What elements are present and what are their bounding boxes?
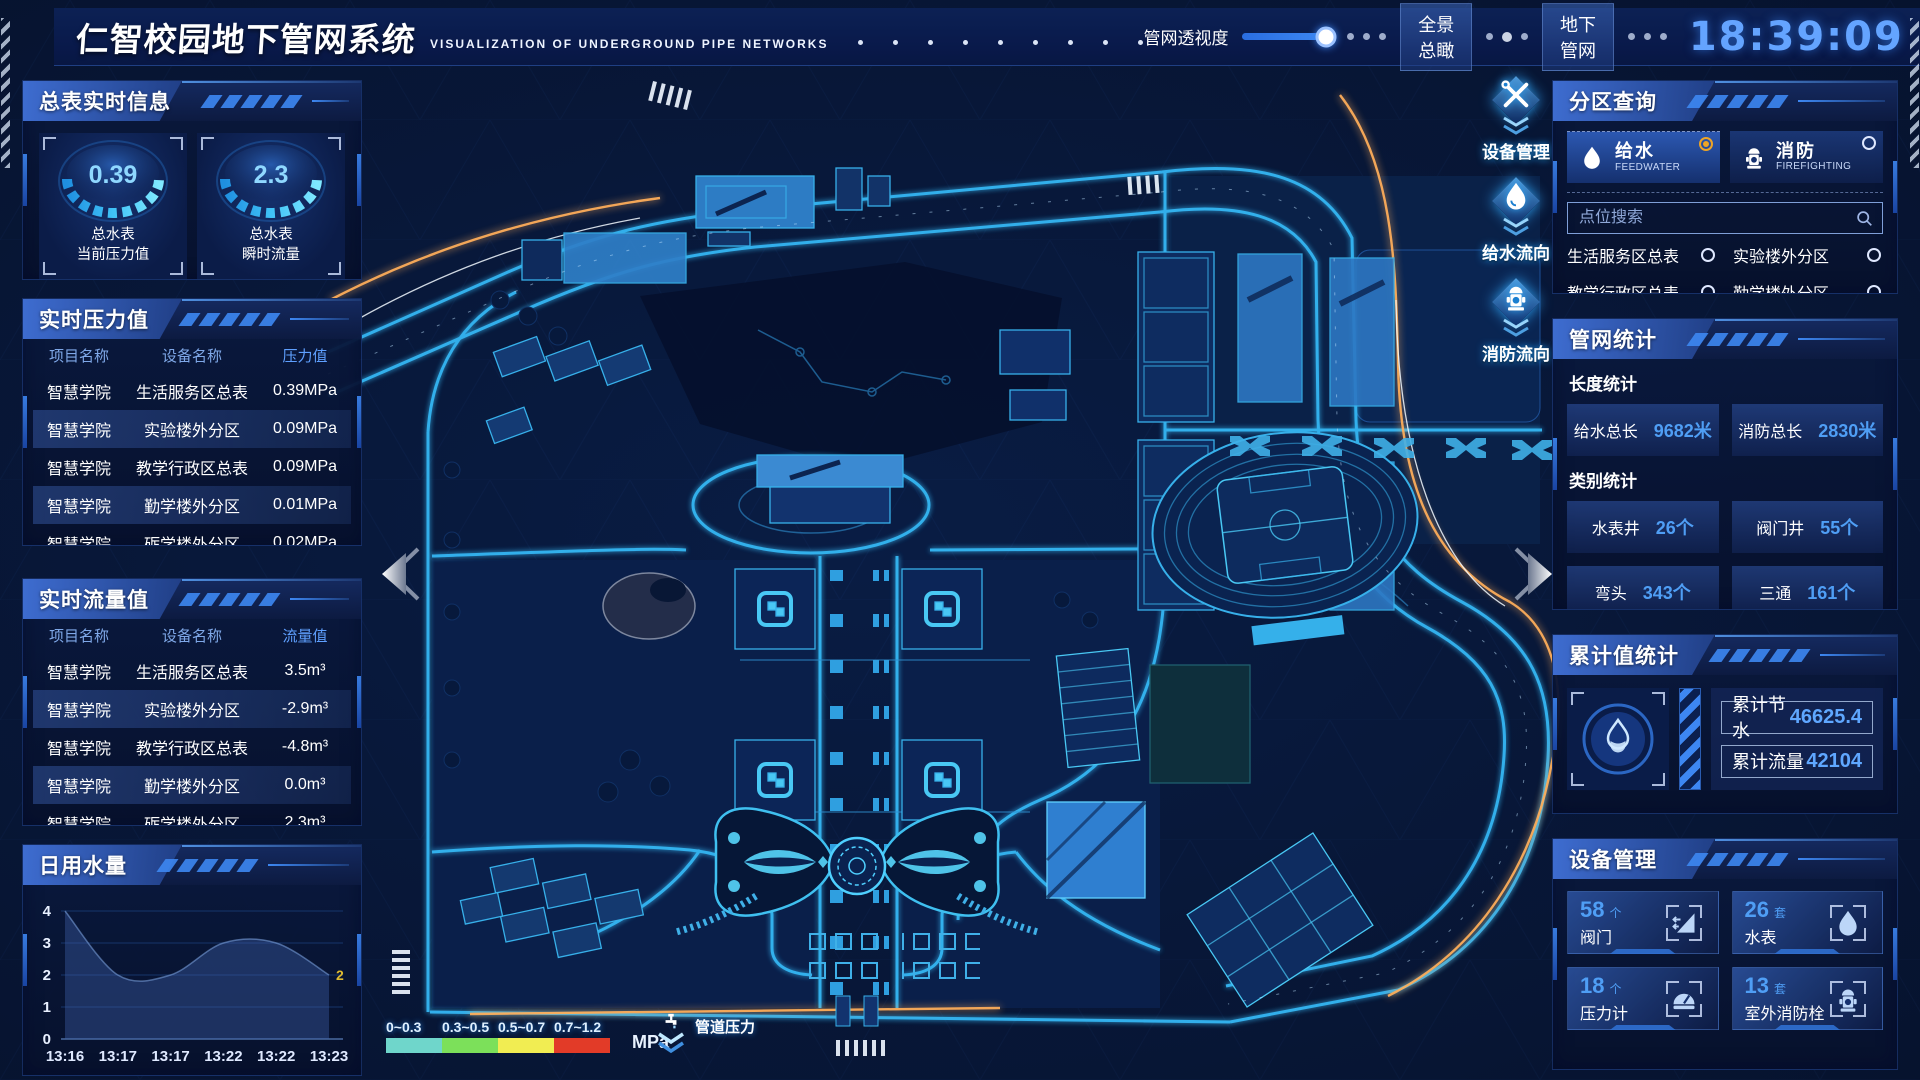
svg-text:1: 1 bbox=[43, 999, 51, 1016]
realtime-flow-section: 实时流量值 项目名称 设备名称 流量值 智慧学院生活服务区总表3.5m³ 智慧学… bbox=[22, 578, 362, 826]
zone-query-section: 分区查询 给水 FEEDWATER bbox=[1552, 80, 1898, 294]
header-line-decoration bbox=[312, 100, 349, 102]
cumulative-stats-section: 累计值统计 累计节水 46625.4 bbox=[1552, 634, 1898, 814]
search-input[interactable] bbox=[1577, 208, 1856, 228]
fire-hydrant-icon bbox=[1742, 144, 1766, 170]
table-row[interactable]: 智慧学院生活服务区总表3.5m³ bbox=[33, 652, 351, 690]
radio-unselected-icon[interactable] bbox=[1867, 248, 1881, 262]
dashed-divider bbox=[1567, 192, 1883, 193]
pressure-table-header: 项目名称 设备名称 压力值 bbox=[23, 339, 361, 372]
realtime-pressure-section: 实时压力值 项目名称 设备名称 压力值 智慧学院生活服务区总表0.39MPa 智… bbox=[22, 298, 362, 546]
header-slashes-decoration bbox=[1691, 333, 1784, 346]
table-row[interactable]: 智慧学院实验楼外分区0.09MPa bbox=[33, 410, 351, 448]
header-dots-decoration bbox=[858, 40, 1143, 45]
pipe-pressure-toggle[interactable]: 管道压力 bbox=[655, 1012, 755, 1054]
zone-list: 生活服务区总表 实验楼外分区 教学行政区总表 勤学楼外分区 砺学楼外分区 宿舍区… bbox=[1567, 243, 1889, 294]
header-slashes-decoration bbox=[205, 95, 298, 108]
water-drop-icon bbox=[1579, 145, 1605, 171]
pipe-opacity-label: 管网透视度 bbox=[1143, 24, 1228, 49]
list-item[interactable]: 勤学楼外分区 bbox=[1733, 280, 1889, 294]
dots-decoration bbox=[1347, 33, 1386, 40]
list-item[interactable]: 生活服务区总表 bbox=[1567, 243, 1723, 267]
table-row[interactable]: 智慧学院生活服务区总表0.39MPa bbox=[33, 372, 351, 410]
table-row[interactable]: 智慧学院教学行政区总表0.09MPa bbox=[33, 448, 351, 486]
flow-table: 智慧学院生活服务区总表3.5m³ 智慧学院实验楼外分区-2.9m³ 智慧学院教学… bbox=[23, 652, 361, 826]
header-line-decoration bbox=[1798, 338, 1885, 340]
map-prev-arrow[interactable] bbox=[372, 545, 422, 603]
legend-segment: 0~0.3 bbox=[386, 1019, 442, 1053]
section-title: 分区查询 bbox=[1569, 86, 1657, 116]
stat-valve-wells: 阀门井 55个 bbox=[1732, 501, 1884, 553]
card-water-meters[interactable]: 26套 水表 bbox=[1732, 891, 1884, 954]
pressure-gauge-widget: 0.39 总水表 当前压力值 bbox=[39, 133, 187, 279]
water-emblem bbox=[1567, 688, 1669, 790]
section-header: 管网统计 bbox=[1553, 319, 1897, 359]
clock: 18:39:09 bbox=[1689, 14, 1904, 60]
table-row[interactable]: 智慧学院勤学楼外分区0.01MPa bbox=[33, 486, 351, 524]
meter-info-section: 总表实时信息 bbox=[22, 80, 362, 280]
header-slashes-decoration bbox=[1691, 95, 1784, 108]
section-title: 实时压力值 bbox=[39, 304, 149, 334]
device-management-section: 设备管理 58个 阀门 26套 bbox=[1552, 838, 1898, 1070]
stat-fire-length: 消防总长 2830米 bbox=[1732, 404, 1884, 456]
table-row[interactable]: 智慧学院砺学楼外分区2.3m³ bbox=[33, 804, 351, 826]
header-slashes-decoration bbox=[1691, 853, 1784, 866]
radio-unselected-icon[interactable] bbox=[1862, 136, 1876, 150]
section-header: 累计值统计 bbox=[1553, 635, 1897, 675]
cumulative-values: 累计节水 46625.4 累计流量 42104 bbox=[1711, 688, 1883, 790]
legend-segment: 0.3~0.5 bbox=[442, 1019, 498, 1053]
section-title: 总表实时信息 bbox=[39, 86, 171, 116]
point-search[interactable] bbox=[1567, 202, 1883, 234]
svg-text:13:16: 13:16 bbox=[46, 1048, 84, 1065]
tool-feedwater-flow[interactable]: 给水流向 bbox=[1482, 173, 1550, 264]
water-drop-icon bbox=[1502, 180, 1530, 212]
header-line-decoration bbox=[1820, 654, 1885, 656]
stat-elbows: 弯头 343个 bbox=[1567, 566, 1719, 610]
header-line-decoration bbox=[290, 598, 349, 600]
table-row[interactable]: 智慧学院实验楼外分区-2.9m³ bbox=[33, 690, 351, 728]
map-tool-stack: 设备管理 给水流向 消防 bbox=[1468, 72, 1564, 375]
tool-fire-flow[interactable]: 消防流向 bbox=[1482, 274, 1550, 365]
pipe-opacity-slider[interactable] bbox=[1242, 33, 1333, 40]
table-row[interactable]: 智慧学院教学行政区总表-4.8m³ bbox=[33, 728, 351, 766]
radio-unselected-icon[interactable] bbox=[1867, 285, 1881, 294]
svg-text:0.39: 0.39 bbox=[89, 161, 138, 189]
svg-text:13:22: 13:22 bbox=[257, 1048, 295, 1065]
svg-text:2: 2 bbox=[336, 967, 344, 983]
radio-selected-icon[interactable] bbox=[1699, 137, 1713, 151]
pipe-opacity-slider-handle[interactable] bbox=[1316, 26, 1337, 47]
page-subtitle: VISUALIZATION OF UNDERGROUND PIPE NETWOR… bbox=[430, 37, 828, 51]
gauge-label: 总水表 当前压力值 bbox=[77, 225, 150, 266]
svg-text:2.3: 2.3 bbox=[254, 161, 289, 189]
pipe-stats-section: 管网统计 长度统计 给水总长 9682米 消防总长 2830米 类别统计 水表井… bbox=[1552, 318, 1898, 610]
header-slashes-decoration bbox=[183, 313, 276, 326]
card-pressure-gauges[interactable]: 18个 压力计 bbox=[1567, 967, 1719, 1030]
header-line-decoration bbox=[290, 318, 349, 320]
cumulative-flow: 累计流量 42104 bbox=[1721, 745, 1873, 778]
gauge-dial-icon: 0.39 bbox=[43, 133, 183, 229]
flow-table-header: 项目名称 设备名称 流量值 bbox=[23, 619, 361, 652]
list-item[interactable]: 实验楼外分区 bbox=[1733, 243, 1889, 267]
list-item[interactable]: 教学行政区总表 bbox=[1567, 280, 1723, 294]
section-title: 设备管理 bbox=[1569, 844, 1657, 874]
water-drop-badge-icon bbox=[1579, 700, 1657, 778]
category-stats-label: 类别统计 bbox=[1569, 467, 1897, 492]
right-edge-stripes bbox=[1910, 18, 1919, 168]
legend-segment: 0.5~0.7 bbox=[498, 1019, 554, 1053]
svg-text:13:17: 13:17 bbox=[151, 1048, 189, 1065]
header-slashes-decoration bbox=[161, 859, 254, 872]
card-outdoor-hydrants[interactable]: 13套 室外消防栓 bbox=[1732, 967, 1884, 1030]
radio-unselected-icon[interactable] bbox=[1701, 248, 1715, 262]
left-panel: 总表实时信息 bbox=[22, 80, 362, 1076]
stat-feedwater-length: 给水总长 9682米 bbox=[1567, 404, 1719, 456]
svg-text:3: 3 bbox=[43, 935, 51, 952]
section-header: 总表实时信息 bbox=[23, 81, 361, 121]
flow-gauge-widget: 2.3 总水表 瞬时流量 bbox=[197, 133, 345, 279]
radio-unselected-icon[interactable] bbox=[1701, 285, 1715, 294]
length-stats-label: 长度统计 bbox=[1569, 370, 1897, 395]
table-row[interactable]: 智慧学院勤学楼外分区0.0m³ bbox=[33, 766, 351, 804]
section-title: 管网统计 bbox=[1569, 324, 1657, 354]
tool-device-management[interactable]: 设备管理 bbox=[1482, 72, 1550, 163]
header-line-decoration bbox=[268, 864, 349, 866]
right-panel: 分区查询 给水 FEEDWATER bbox=[1552, 80, 1898, 1076]
gauge-dial-icon: 2.3 bbox=[201, 133, 341, 229]
pipe-opacity-slider-fill bbox=[1242, 33, 1326, 40]
daily-water-section: 日用水量 4 3 2 1 0 2 13:16 13:17 13:17 bbox=[22, 844, 362, 1076]
header-slashes-decoration bbox=[183, 593, 276, 606]
pressure-table: 智慧学院生活服务区总表0.39MPa 智慧学院实验楼外分区0.09MPa 智慧学… bbox=[23, 372, 361, 546]
pressure-gauge-icon bbox=[1670, 985, 1698, 1013]
section-header: 实时流量值 bbox=[23, 579, 361, 619]
section-title: 日用水量 bbox=[39, 850, 127, 880]
underground-pipes-button[interactable]: 地下管网 bbox=[1542, 3, 1614, 71]
section-header: 实时压力值 bbox=[23, 299, 361, 339]
panorama-overview-button[interactable]: 全景总瞰 bbox=[1400, 3, 1472, 71]
section-title: 实时流量值 bbox=[39, 584, 149, 614]
svg-text:13:17: 13:17 bbox=[99, 1048, 137, 1065]
svg-text:13:23: 13:23 bbox=[310, 1048, 348, 1065]
svg-text:13:22: 13:22 bbox=[204, 1048, 242, 1065]
legend-segment: 0.7~1.2 bbox=[554, 1019, 610, 1053]
stat-water-meter-wells: 水表井 26个 bbox=[1567, 501, 1719, 553]
left-edge-stripes bbox=[1, 18, 10, 168]
fire-hydrant-icon bbox=[1835, 985, 1861, 1013]
header-line-decoration bbox=[1798, 100, 1885, 102]
wrench-screwdriver-icon bbox=[1499, 78, 1533, 112]
table-row[interactable]: 智慧学院砺学楼外分区0.02MPa bbox=[33, 524, 351, 546]
section-header: 日用水量 bbox=[23, 845, 361, 885]
tab-firefighting[interactable]: 消防 FIREFIGHTING bbox=[1730, 131, 1883, 183]
stripe-divider bbox=[1679, 688, 1701, 790]
section-header: 设备管理 bbox=[1553, 839, 1897, 879]
valve-icon bbox=[1670, 909, 1698, 937]
svg-text:0: 0 bbox=[43, 1031, 51, 1048]
page-title: 仁智校园地下管网系统 bbox=[74, 13, 417, 61]
card-valves[interactable]: 58个 阀门 bbox=[1567, 891, 1719, 954]
chevron-down-icon bbox=[655, 1032, 687, 1054]
daily-water-chart: 4 3 2 1 0 2 13:16 13:17 13:17 13:22 13:2… bbox=[23, 885, 361, 1074]
stat-tees: 三通 161个 bbox=[1732, 566, 1884, 610]
search-icon[interactable] bbox=[1856, 210, 1873, 227]
gauge-label: 总水表 瞬时流量 bbox=[242, 225, 300, 266]
header-slashes-decoration bbox=[1713, 649, 1806, 662]
section-header: 分区查询 bbox=[1553, 81, 1897, 121]
water-meter-icon bbox=[1835, 909, 1861, 937]
cumulative-saved-water: 累计节水 46625.4 bbox=[1721, 701, 1873, 734]
dots-decoration bbox=[1628, 33, 1667, 40]
faucet-icon bbox=[660, 1012, 682, 1032]
top-bar: 仁智校园地下管网系统 VISUALIZATION OF UNDERGROUND … bbox=[54, 8, 1920, 66]
section-title: 累计值统计 bbox=[1569, 640, 1679, 670]
pipe-pressure-legend: 0~0.3 0.3~0.5 0.5~0.7 0.7~1.2 MPa bbox=[386, 1019, 669, 1053]
header-line-decoration bbox=[1798, 858, 1885, 860]
tab-feedwater[interactable]: 给水 FEEDWATER bbox=[1567, 131, 1720, 183]
fire-hydrant-icon bbox=[1502, 281, 1530, 313]
svg-text:2: 2 bbox=[43, 967, 51, 984]
svg-text:4: 4 bbox=[43, 903, 52, 920]
dots-decoration bbox=[1486, 32, 1528, 42]
